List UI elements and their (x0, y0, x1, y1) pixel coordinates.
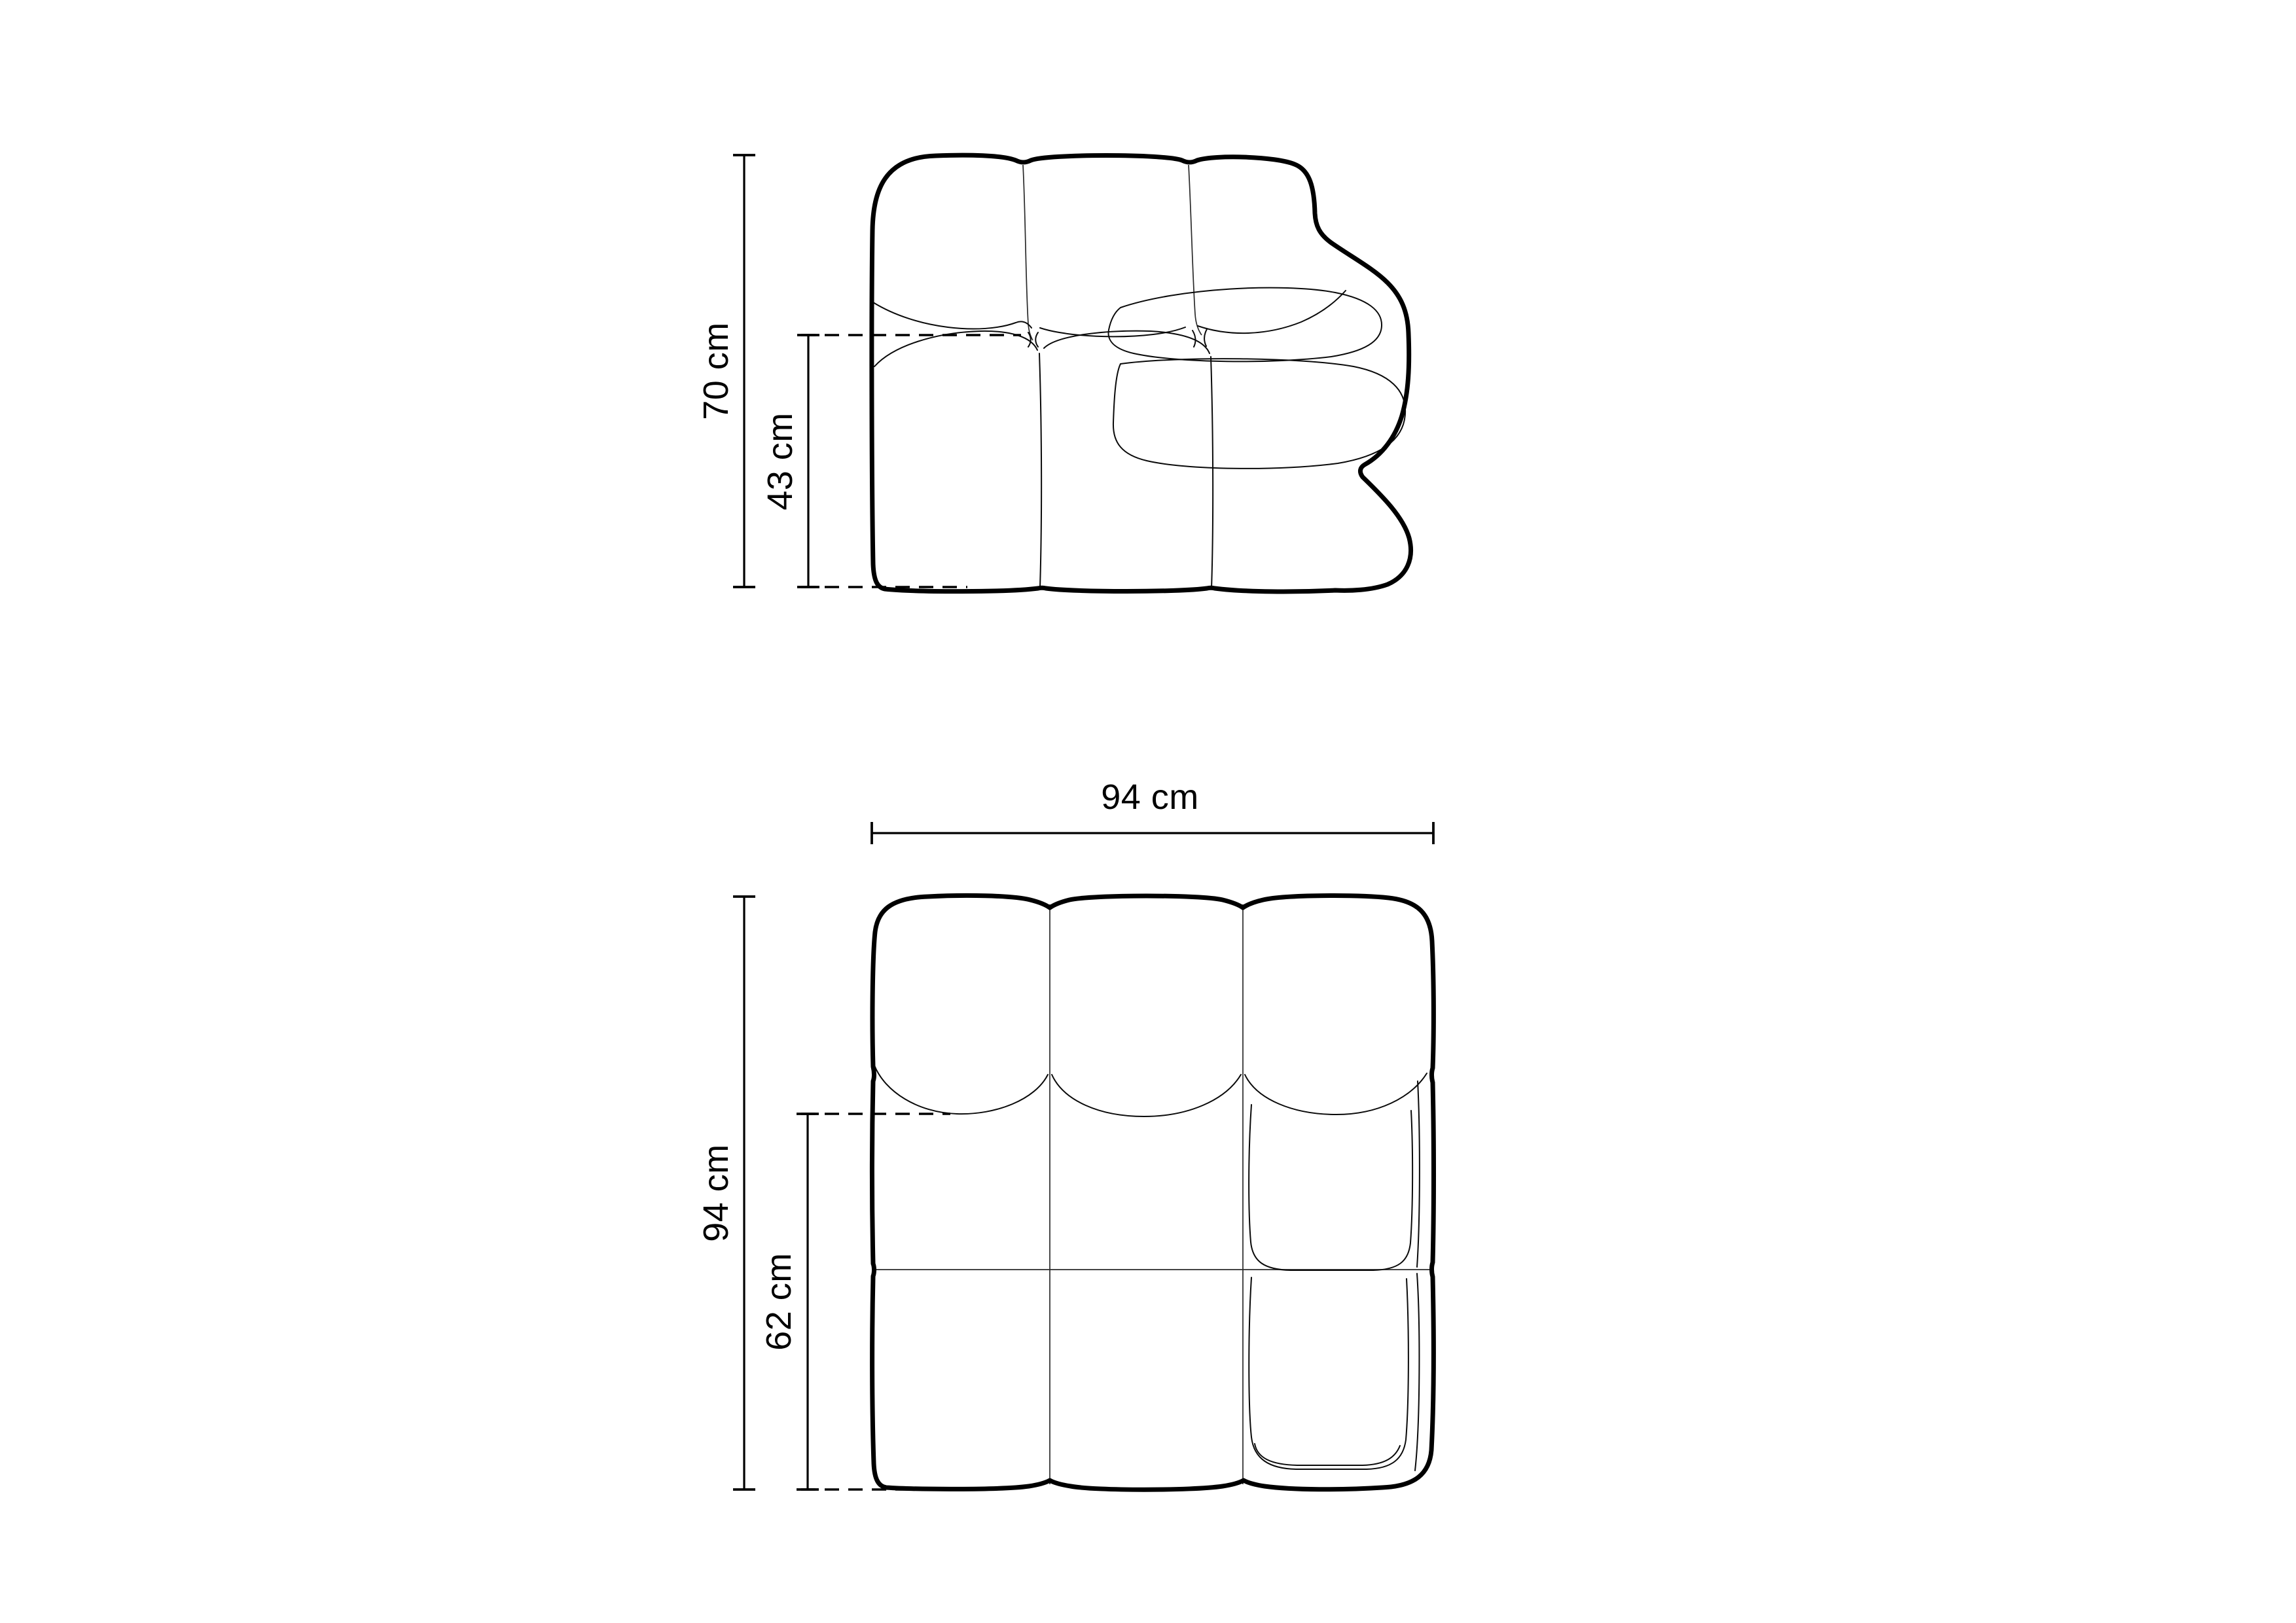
top-view-sofa-drawing (872, 895, 1434, 1489)
top-total-width-label: 94 cm (1101, 777, 1199, 817)
front-view-outline (872, 155, 1411, 592)
top-view-outline (872, 895, 1434, 1489)
front-total-height-label: 70 cm (696, 322, 736, 420)
front-seat-cushion-top-left (874, 331, 1037, 366)
front-seat-height-label: 43 cm (761, 412, 800, 510)
top-view: 94 cm 94 cm 62 cm (696, 777, 1434, 1489)
top-view-dimensions: 94 cm 94 cm 62 cm (696, 777, 1433, 1489)
front-armrest-roll-upper (1109, 288, 1382, 362)
front-seat-cushion-seam-right (1211, 357, 1213, 588)
top-armrest-cushion-middle-cell (1249, 1105, 1412, 1270)
front-armrest-roll-lower (1113, 359, 1405, 469)
top-back-cushion-sag-left (874, 1065, 1048, 1114)
top-total-depth-label: 94 cm (696, 1144, 736, 1242)
top-back-cushion-sag-middle (1052, 1075, 1241, 1116)
front-back-cushion-divider-right (1189, 165, 1202, 335)
spec-sheet-page: 70 cm 43 cm (0, 0, 2296, 1623)
front-back-cushion-bottom-right (1198, 291, 1346, 333)
top-armrest-cushion-bottom-inner-line (1255, 1444, 1400, 1465)
technical-drawing-canvas: 70 cm 43 cm (0, 0, 2296, 1623)
top-back-cushion-sag-right (1245, 1073, 1427, 1115)
top-armrest-inner-edge-bottom-cell (1415, 1274, 1419, 1471)
front-view-dimensions: 70 cm 43 cm (696, 155, 1021, 587)
front-view-sofa-drawing (872, 155, 1411, 592)
front-back-cushion-divider-left (1023, 165, 1033, 340)
front-view: 70 cm 43 cm (696, 155, 1411, 592)
front-seat-cushion-seam-left (1039, 353, 1041, 588)
top-armrest-cushion-bottom-cell (1249, 1277, 1408, 1469)
front-back-cushion-bottom-left (873, 302, 1031, 329)
top-seat-depth-label: 62 cm (759, 1253, 798, 1351)
top-armrest-inner-edge-middle-cell (1417, 1081, 1420, 1267)
